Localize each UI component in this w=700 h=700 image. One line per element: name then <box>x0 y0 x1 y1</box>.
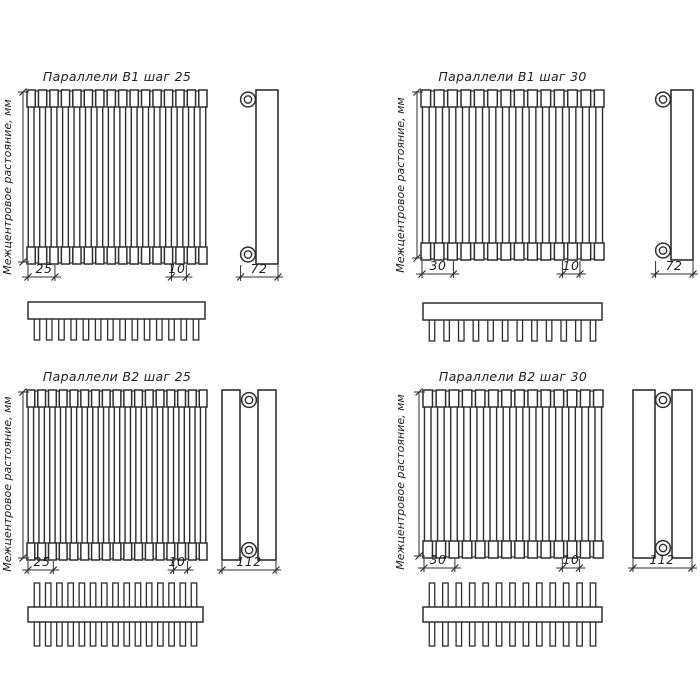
dim-label-step: 30 <box>408 552 468 567</box>
quadrant-title-b1-30: Параллели В1 шаг 30 <box>421 69 604 84</box>
dim-label-depth: 72 <box>644 258 700 273</box>
dim-label-step: 25 <box>14 261 74 276</box>
dim-label-step: 30 <box>408 258 468 273</box>
intercenter-distance-label: Межцентровое растояние, мм <box>1 89 14 285</box>
intercenter-distance-label: Межцентровое растояние, мм <box>394 384 407 580</box>
dim-label-depth: 112 <box>219 554 279 569</box>
intercenter-distance-label: Межцентровое растояние, мм <box>1 386 14 582</box>
dim-label-tube-width: 10 <box>147 554 207 569</box>
quadrant-title-b1-25: Параллели В1 шаг 25 <box>27 69 207 84</box>
dim-label-depth: 72 <box>229 261 289 276</box>
radiator-drawing-canvas <box>0 0 700 700</box>
dim-label-tube-width: 10 <box>147 261 207 276</box>
dim-label-step: 25 <box>12 554 72 569</box>
quadrant-title-b2-25: Параллели В2 шаг 25 <box>27 369 207 384</box>
quadrant-title-b2-30: Параллели В2 шаг 30 <box>423 369 603 384</box>
dim-label-depth: 112 <box>632 552 692 567</box>
dim-label-tube-width: 10 <box>541 552 601 567</box>
drawing-sheet: Параллели В1 шаг 25 Параллели В1 шаг 30 … <box>0 0 700 700</box>
technical-drawing-page: { "page": { "background": "#ffffff", "li… <box>0 0 700 700</box>
intercenter-distance-label: Межцентровое растояние, мм <box>394 87 407 283</box>
dim-label-tube-width: 10 <box>541 258 601 273</box>
